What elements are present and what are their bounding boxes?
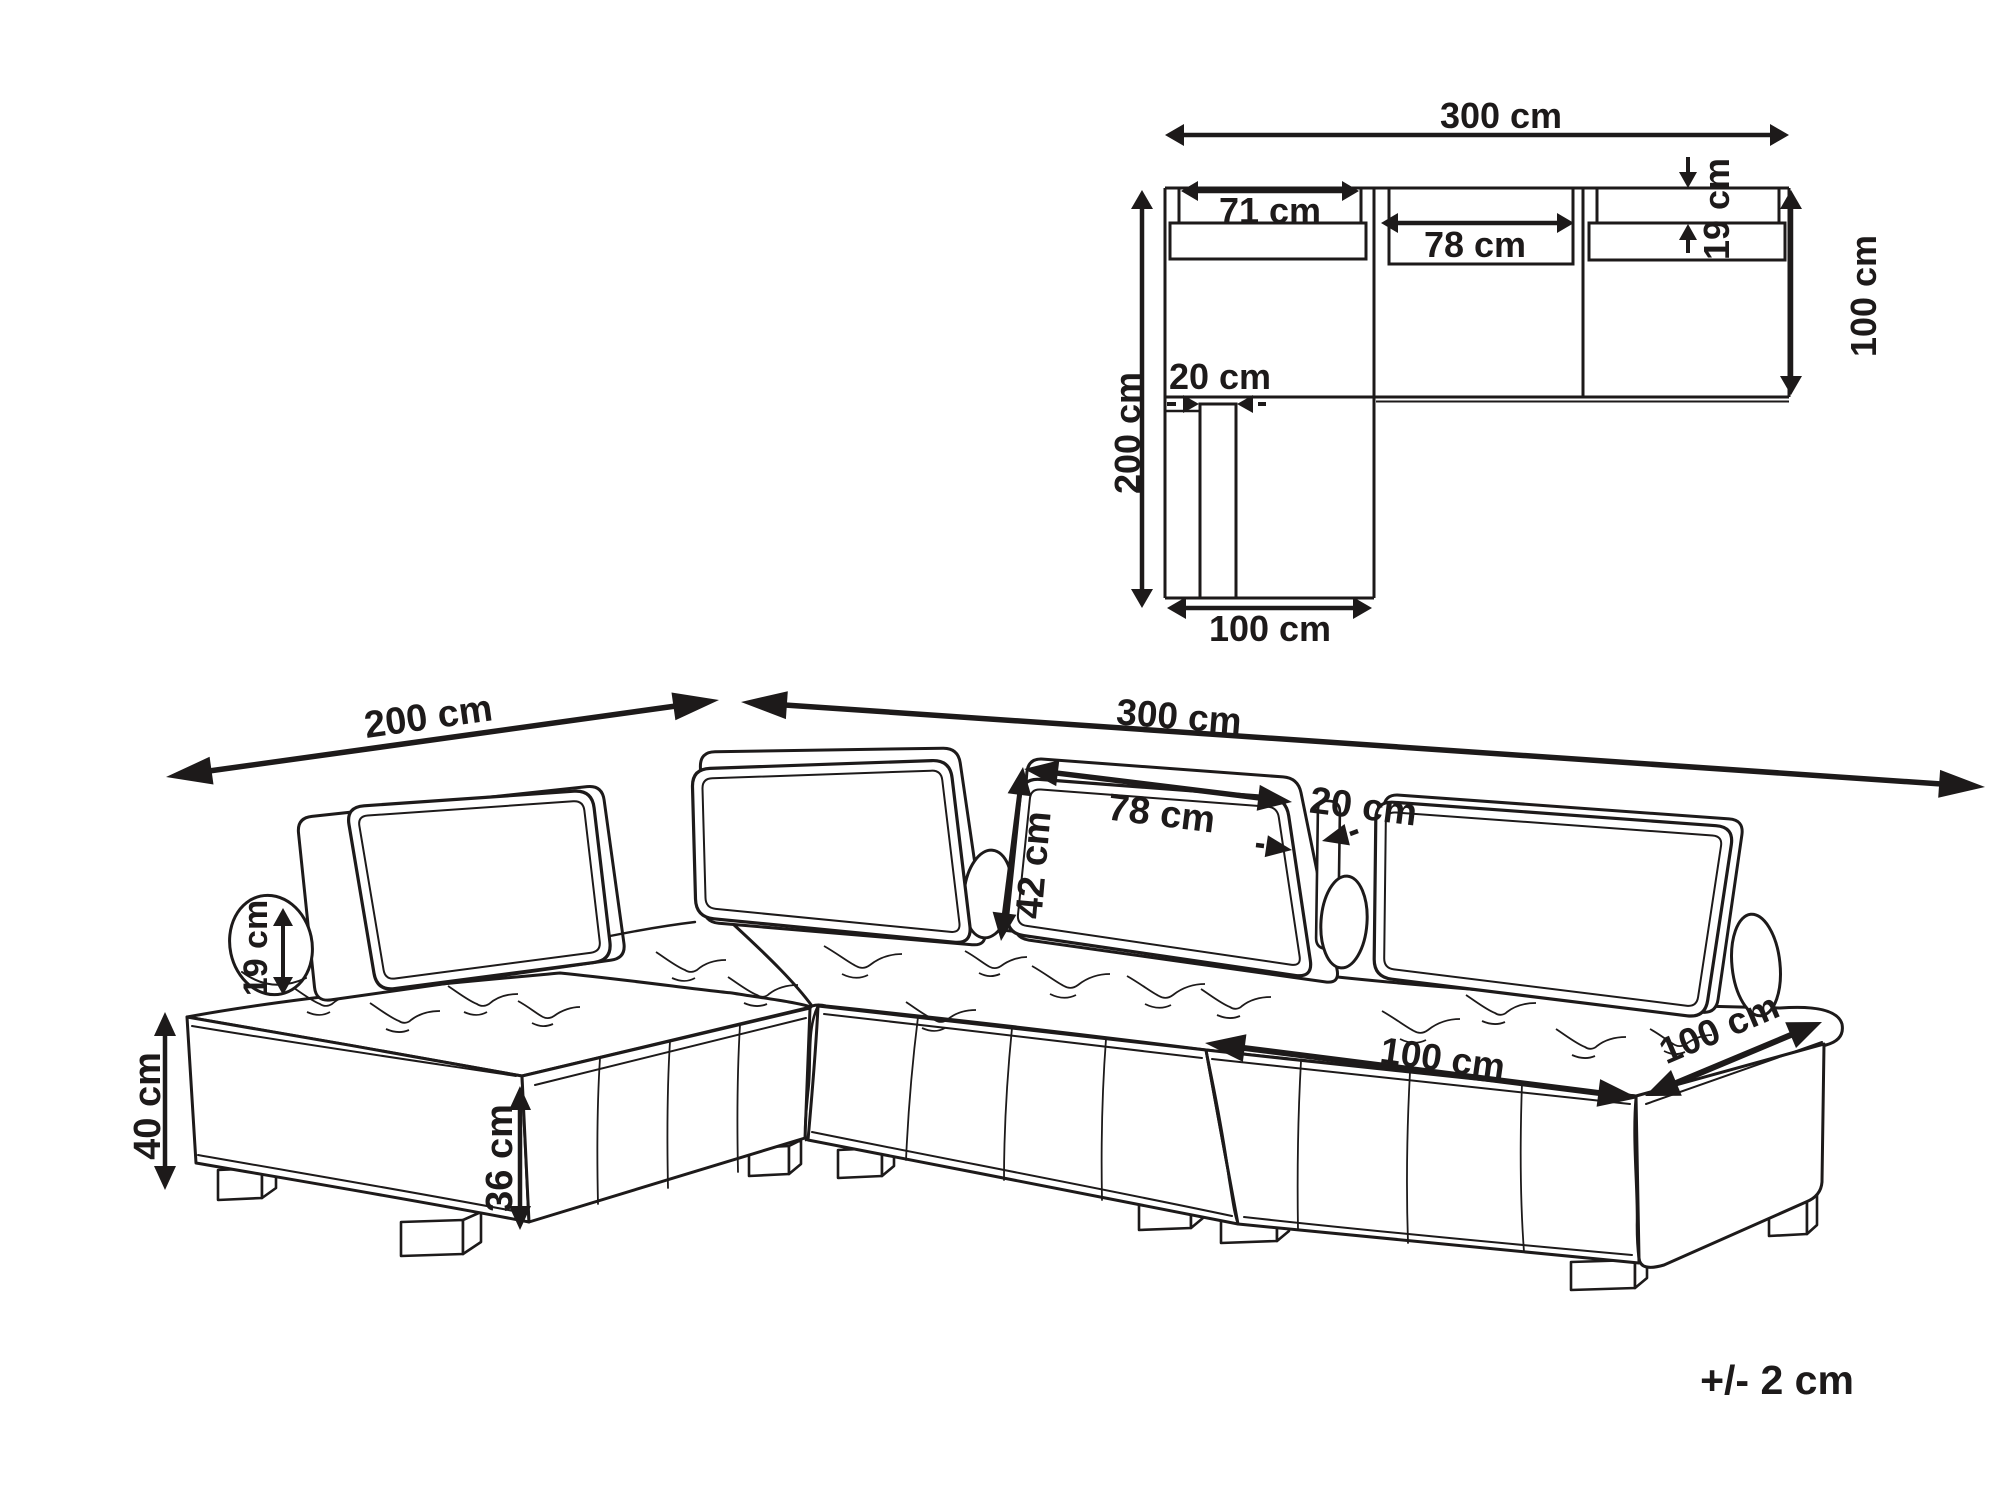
svg-text:19 cm: 19 cm: [1696, 158, 1737, 260]
svg-text:36 cm: 36 cm: [479, 1104, 521, 1212]
svg-text:200 cm: 200 cm: [1107, 372, 1148, 494]
svg-text:19 cm: 19 cm: [237, 900, 275, 996]
svg-text:100 cm: 100 cm: [1209, 608, 1331, 649]
svg-text:20 cm: 20 cm: [1169, 356, 1271, 397]
svg-text:40 cm: 40 cm: [127, 1052, 169, 1160]
svg-text:300 cm: 300 cm: [1440, 95, 1562, 136]
svg-text:78 cm: 78 cm: [1424, 224, 1526, 265]
svg-text:+/- 2 cm: +/- 2 cm: [1700, 1357, 1854, 1403]
svg-text:100 cm: 100 cm: [1843, 235, 1884, 357]
svg-text:71 cm: 71 cm: [1219, 190, 1321, 231]
